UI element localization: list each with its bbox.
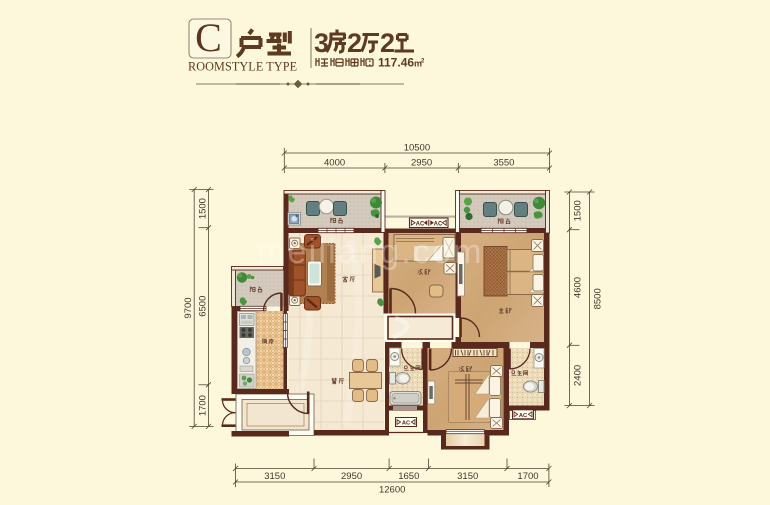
svg-text:3: 3 — [314, 28, 329, 58]
svg-text:6500: 6500 — [198, 296, 209, 317]
svg-text:2400: 2400 — [572, 365, 583, 386]
svg-text:1500: 1500 — [198, 198, 209, 219]
svg-text:2950: 2950 — [411, 158, 432, 169]
svg-text:8500: 8500 — [593, 288, 604, 309]
svg-text:4600: 4600 — [572, 277, 583, 298]
svg-text:ROOMSTYLE TYPE: ROOMSTYLE TYPE — [188, 60, 297, 74]
svg-text:9700: 9700 — [183, 297, 194, 318]
svg-text:1700: 1700 — [517, 471, 538, 482]
svg-text:3150: 3150 — [457, 471, 478, 482]
svg-text:3150: 3150 — [264, 471, 285, 482]
svg-text:1700: 1700 — [198, 395, 209, 416]
svg-text:1500: 1500 — [572, 200, 583, 221]
svg-text:meiliang.com: meiliang.com — [257, 233, 484, 271]
svg-text:3550: 3550 — [493, 158, 514, 169]
svg-text:2: 2 — [347, 28, 362, 58]
svg-text:4000: 4000 — [324, 158, 345, 169]
svg-text:2: 2 — [380, 28, 395, 58]
svg-text:AC: AC — [402, 421, 411, 427]
svg-text::: : — [368, 57, 372, 69]
svg-text:12600: 12600 — [379, 485, 405, 496]
svg-text:1650: 1650 — [398, 471, 419, 482]
svg-text:AC: AC — [434, 221, 443, 227]
svg-text:117.46: 117.46 — [378, 56, 414, 70]
svg-text:10500: 10500 — [404, 143, 430, 154]
svg-text:AC: AC — [519, 413, 528, 419]
svg-text:C: C — [195, 15, 222, 60]
svg-text:AC: AC — [416, 221, 425, 227]
svg-text:2950: 2950 — [341, 471, 362, 482]
